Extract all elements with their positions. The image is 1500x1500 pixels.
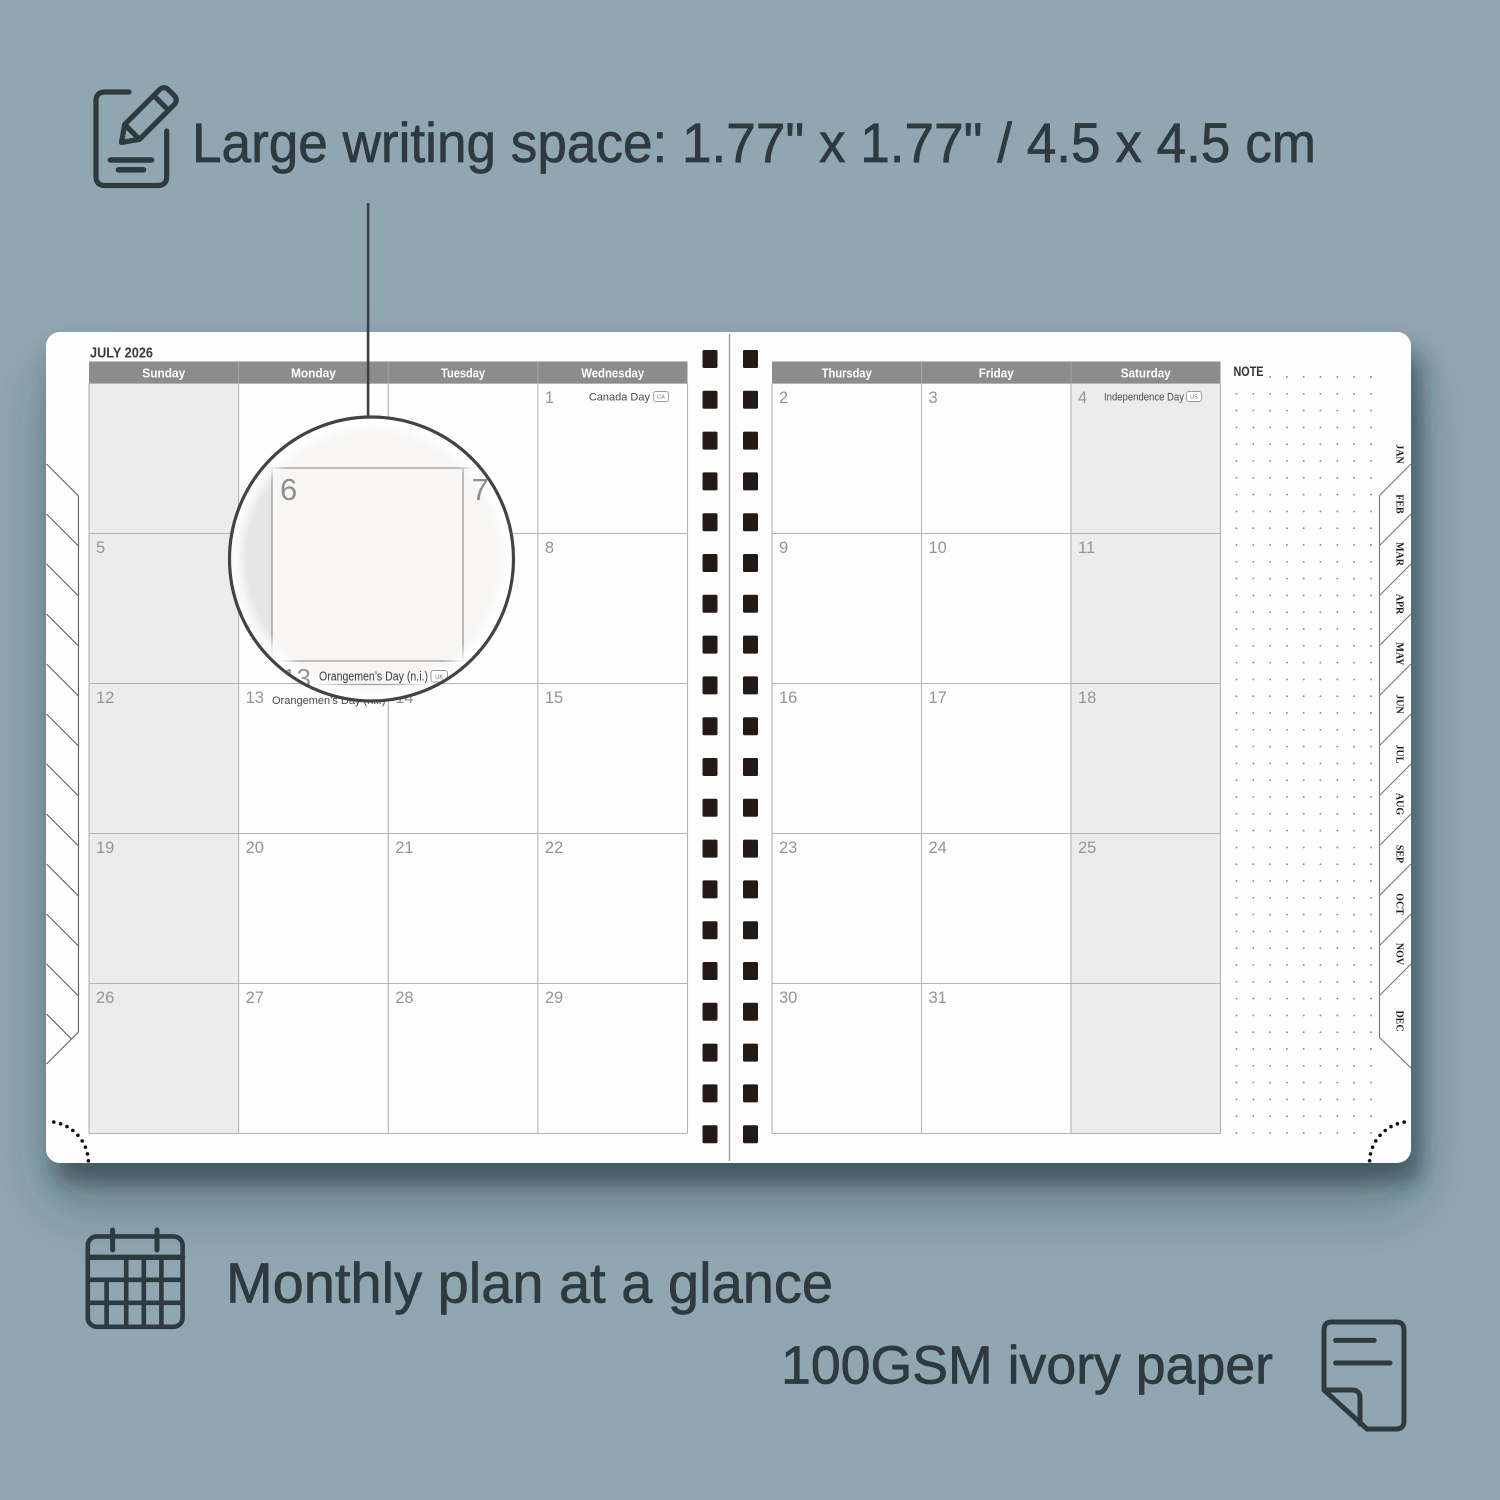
svg-text:Large writing space: 1.77" x 1: Large writing space: 1.77" x 1.77" / 4.5… bbox=[192, 111, 1316, 174]
svg-text:24: 24 bbox=[929, 839, 947, 857]
svg-text:5: 5 bbox=[96, 539, 105, 557]
svg-text:Monthly plan at a glance: Monthly plan at a glance bbox=[226, 1252, 833, 1316]
svg-text:11: 11 bbox=[1078, 539, 1095, 557]
svg-text:JAN: JAN bbox=[1394, 444, 1405, 464]
svg-text:1: 1 bbox=[545, 389, 554, 407]
svg-text:MAY: MAY bbox=[1394, 643, 1405, 667]
svg-text:16: 16 bbox=[779, 689, 797, 707]
svg-text:19: 19 bbox=[96, 839, 114, 857]
svg-text:JULY 2026: JULY 2026 bbox=[90, 345, 153, 362]
svg-text:Wednesday: Wednesday bbox=[581, 366, 645, 381]
svg-text:100GSM ivory paper: 100GSM ivory paper bbox=[781, 1336, 1273, 1396]
svg-text:JUL: JUL bbox=[1394, 745, 1405, 764]
svg-text:12: 12 bbox=[96, 689, 114, 707]
svg-text:22: 22 bbox=[545, 839, 563, 857]
svg-text:10: 10 bbox=[929, 539, 947, 557]
svg-text:6: 6 bbox=[280, 472, 297, 507]
svg-text:21: 21 bbox=[395, 839, 413, 857]
svg-text:JUN: JUN bbox=[1394, 694, 1405, 714]
svg-text:30: 30 bbox=[779, 989, 797, 1007]
svg-text:OCT: OCT bbox=[1394, 893, 1405, 915]
svg-text:CA: CA bbox=[657, 395, 665, 401]
svg-text:29: 29 bbox=[545, 989, 563, 1007]
svg-text:23: 23 bbox=[779, 839, 797, 857]
svg-text:Independence Day: Independence Day bbox=[1104, 392, 1184, 404]
svg-text:18: 18 bbox=[1078, 689, 1096, 707]
svg-text:Tuesday: Tuesday bbox=[441, 366, 486, 381]
svg-text:NOTE: NOTE bbox=[1234, 363, 1264, 379]
svg-text:3: 3 bbox=[929, 389, 938, 407]
svg-text:Sunday: Sunday bbox=[142, 366, 186, 381]
svg-text:DEC: DEC bbox=[1394, 1010, 1405, 1031]
svg-text:28: 28 bbox=[395, 989, 413, 1007]
svg-text:UK: UK bbox=[435, 675, 443, 681]
svg-text:MAR: MAR bbox=[1394, 542, 1405, 567]
svg-text:13: 13 bbox=[246, 689, 264, 707]
svg-text:Orangemen’s Day (n.i.): Orangemen’s Day (n.i.) bbox=[319, 669, 428, 684]
svg-text:9: 9 bbox=[779, 539, 788, 557]
svg-text:Monday: Monday bbox=[291, 366, 337, 381]
svg-text:4: 4 bbox=[1078, 389, 1087, 407]
svg-text:FEB: FEB bbox=[1394, 494, 1405, 514]
svg-text:27: 27 bbox=[246, 989, 264, 1007]
svg-text:US: US bbox=[1190, 395, 1198, 401]
svg-text:17: 17 bbox=[929, 689, 947, 707]
svg-text:25: 25 bbox=[1078, 839, 1096, 857]
svg-text:8: 8 bbox=[545, 539, 554, 557]
svg-text:2: 2 bbox=[779, 389, 788, 407]
svg-text:20: 20 bbox=[246, 839, 264, 857]
svg-text:Thursday: Thursday bbox=[822, 366, 873, 381]
svg-text:15: 15 bbox=[545, 689, 563, 707]
svg-text:31: 31 bbox=[929, 989, 947, 1007]
svg-text:Saturday: Saturday bbox=[1121, 366, 1172, 381]
svg-text:SEP: SEP bbox=[1394, 845, 1405, 863]
svg-text:AUG: AUG bbox=[1394, 793, 1405, 815]
svg-text:Canada Day: Canada Day bbox=[589, 392, 651, 404]
svg-text:NOV: NOV bbox=[1394, 943, 1405, 966]
svg-text:26: 26 bbox=[96, 989, 114, 1007]
svg-text:APR: APR bbox=[1394, 594, 1405, 615]
svg-text:Friday: Friday bbox=[979, 366, 1015, 381]
